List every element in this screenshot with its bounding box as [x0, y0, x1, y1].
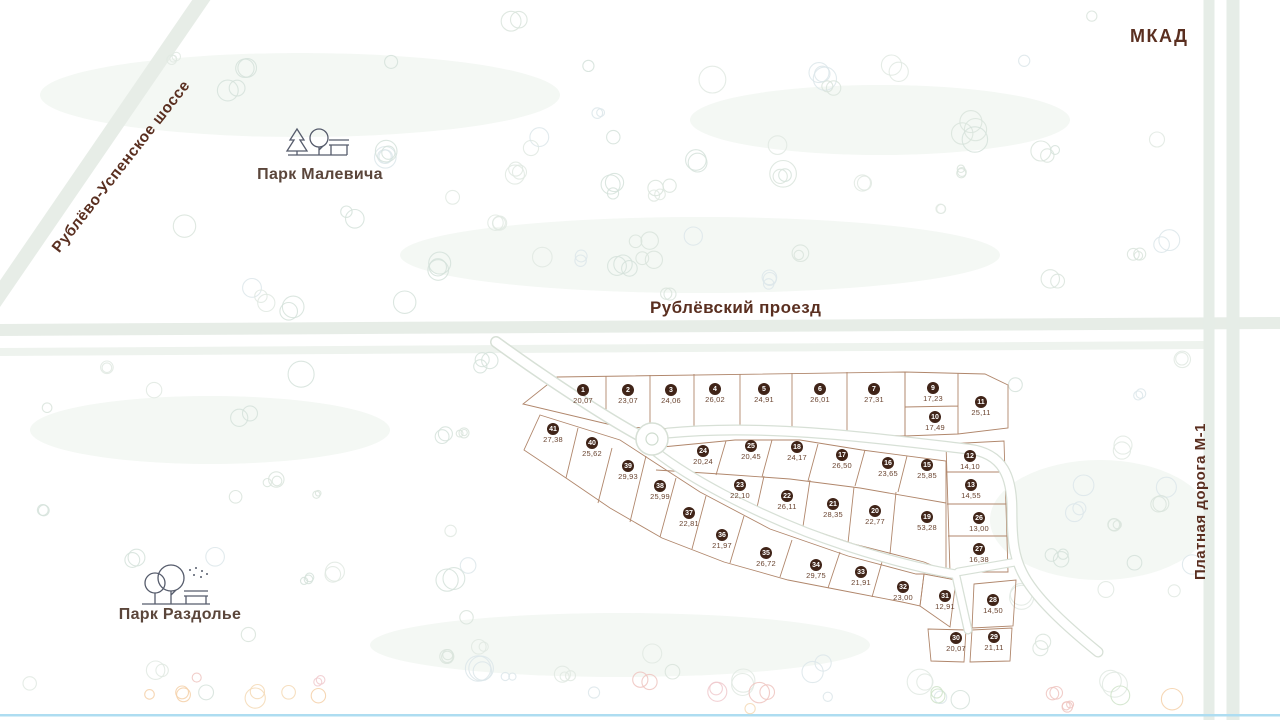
plot-number-badge[interactable]: 22 [781, 490, 793, 502]
plot-number-badge[interactable]: 34 [810, 559, 822, 571]
plot-number-badge[interactable]: 37 [683, 507, 695, 519]
plots-layer: 120,07223,07324,06426,02524,91626,01727,… [0, 0, 1280, 720]
plot-area-label: 26,50 [832, 462, 852, 470]
plot-marker-9[interactable]: 917,23 [910, 382, 956, 403]
plot-marker-41[interactable]: 4127,38 [530, 423, 576, 444]
plot-marker-39[interactable]: 3929,93 [605, 460, 651, 481]
plot-area-label: 21,11 [984, 644, 1003, 652]
plot-marker-27[interactable]: 2716,38 [956, 543, 1002, 564]
plot-area-label: 26,72 [756, 560, 776, 568]
plot-area-label: 24,06 [661, 397, 681, 405]
plot-area-label: 17,49 [925, 424, 945, 432]
plot-number-badge[interactable]: 40 [586, 437, 598, 449]
plot-number-badge[interactable]: 26 [973, 512, 985, 524]
plot-marker-18[interactable]: 1824,17 [774, 441, 820, 462]
plot-number-badge[interactable]: 36 [716, 529, 728, 541]
plot-marker-21[interactable]: 2128,35 [810, 498, 856, 519]
plot-marker-19[interactable]: 1953,28 [904, 511, 950, 532]
plot-number-badge[interactable]: 6 [814, 383, 826, 395]
plot-marker-2[interactable]: 223,07 [605, 384, 651, 405]
plot-number-badge[interactable]: 20 [869, 505, 881, 517]
plot-marker-3[interactable]: 324,06 [648, 384, 694, 405]
plot-number-badge[interactable]: 31 [939, 590, 951, 602]
plot-area-label: 13,00 [969, 525, 989, 533]
plot-marker-20[interactable]: 2022,77 [852, 505, 898, 526]
plot-area-label: 22,10 [730, 492, 750, 500]
plot-marker-12[interactable]: 1214,10 [947, 450, 993, 471]
plot-area-label: 25,85 [917, 472, 937, 480]
plot-number-badge[interactable]: 1 [577, 384, 589, 396]
plot-number-badge[interactable]: 9 [927, 382, 939, 394]
plot-marker-13[interactable]: 1314,55 [948, 479, 994, 500]
plot-number-badge[interactable]: 4 [709, 383, 721, 395]
plot-number-badge[interactable]: 11 [975, 396, 987, 408]
plot-marker-10[interactable]: 1017,49 [912, 411, 958, 432]
plot-number-badge[interactable]: 38 [654, 480, 666, 492]
plot-marker-37[interactable]: 3722,81 [666, 507, 712, 528]
plot-area-label: 22,77 [865, 518, 885, 526]
plot-number-badge[interactable]: 18 [791, 441, 803, 453]
plot-area-label: 24,91 [754, 396, 774, 404]
plot-number-badge[interactable]: 16 [882, 457, 894, 469]
plot-number-badge[interactable]: 23 [734, 479, 746, 491]
plot-area-label: 21,97 [712, 542, 732, 550]
plot-number-badge[interactable]: 24 [697, 445, 709, 457]
plot-marker-4[interactable]: 426,02 [692, 383, 738, 404]
plot-area-label: 23,07 [618, 397, 638, 405]
plot-marker-6[interactable]: 626,01 [797, 383, 843, 404]
plot-marker-5[interactable]: 524,91 [741, 383, 787, 404]
plot-area-label: 27,38 [543, 436, 563, 444]
plot-area-label: 29,75 [806, 572, 826, 580]
plot-number-badge[interactable]: 35 [760, 547, 772, 559]
plot-marker-7[interactable]: 727,31 [851, 383, 897, 404]
plot-number-badge[interactable]: 29 [988, 631, 1000, 643]
plot-area-label: 24,17 [787, 454, 807, 462]
plot-number-badge[interactable]: 25 [745, 440, 757, 452]
plot-area-label: 21,91 [851, 579, 871, 587]
plot-area-label: 17,23 [923, 395, 943, 403]
plot-number-badge[interactable]: 5 [758, 383, 770, 395]
plot-marker-11[interactable]: 1125,11 [958, 396, 1004, 417]
plot-number-badge[interactable]: 27 [973, 543, 985, 555]
plot-number-badge[interactable]: 21 [827, 498, 839, 510]
plot-number-badge[interactable]: 13 [965, 479, 977, 491]
plot-area-label: 26,11 [777, 503, 796, 511]
plot-area-label: 20,07 [573, 397, 593, 405]
plot-marker-23[interactable]: 2322,10 [717, 479, 763, 500]
plot-area-label: 23,00 [893, 594, 913, 602]
plot-area-label: 28,35 [823, 511, 843, 519]
plot-marker-22[interactable]: 2226,11 [764, 490, 810, 511]
plot-marker-1[interactable]: 120,07 [560, 384, 606, 405]
plot-number-badge[interactable]: 33 [855, 566, 867, 578]
plot-area-label: 26,01 [810, 396, 830, 404]
plot-marker-33[interactable]: 3321,91 [838, 566, 884, 587]
plot-number-badge[interactable]: 7 [868, 383, 880, 395]
plot-area-label: 20,45 [741, 453, 761, 461]
plot-area-label: 29,93 [618, 473, 638, 481]
plot-area-label: 26,02 [705, 396, 725, 404]
plot-area-label: 25,62 [582, 450, 602, 458]
plot-area-label: 12,91 [935, 603, 955, 611]
plot-area-label: 20,24 [693, 458, 713, 466]
plot-number-badge[interactable]: 32 [897, 581, 909, 593]
plot-number-badge[interactable]: 2 [622, 384, 634, 396]
plot-area-label: 14,10 [960, 463, 980, 471]
plot-number-badge[interactable]: 10 [929, 411, 941, 423]
plot-marker-17[interactable]: 1726,50 [819, 449, 865, 470]
plot-marker-31[interactable]: 3112,91 [922, 590, 968, 611]
plot-marker-26[interactable]: 2613,00 [956, 512, 1002, 533]
plot-number-badge[interactable]: 30 [950, 632, 962, 644]
plot-number-badge[interactable]: 19 [921, 511, 933, 523]
plot-marker-25[interactable]: 2520,45 [728, 440, 774, 461]
plot-area-label: 53,28 [917, 524, 937, 532]
plot-number-badge[interactable]: 39 [622, 460, 634, 472]
plot-area-label: 16,38 [969, 556, 989, 564]
plot-area-label: 25,99 [650, 493, 670, 501]
masterplan-map: МКАД Рублёвский проезд Рублёво-Успенское… [0, 0, 1280, 720]
plot-marker-28[interactable]: 2814,50 [970, 594, 1016, 615]
plot-marker-30[interactable]: 3020,07 [933, 632, 979, 653]
plot-area-label: 14,55 [961, 492, 981, 500]
plot-number-badge[interactable]: 28 [987, 594, 999, 606]
plot-marker-34[interactable]: 3429,75 [793, 559, 839, 580]
plot-marker-24[interactable]: 2420,24 [680, 445, 726, 466]
plot-area-label: 22,81 [679, 520, 699, 528]
plot-area-label: 23,65 [878, 470, 898, 478]
plot-number-badge[interactable]: 17 [836, 449, 848, 461]
plot-marker-36[interactable]: 3621,97 [699, 529, 745, 550]
plot-number-badge[interactable]: 41 [547, 423, 559, 435]
plot-marker-38[interactable]: 3825,99 [637, 480, 683, 501]
plot-number-badge[interactable]: 12 [964, 450, 976, 462]
plot-area-label: 25,11 [971, 409, 990, 417]
plot-number-badge[interactable]: 15 [921, 459, 933, 471]
plot-marker-16[interactable]: 1623,65 [865, 457, 911, 478]
plot-area-label: 14,50 [983, 607, 1003, 615]
plot-marker-32[interactable]: 3223,00 [880, 581, 926, 602]
plot-area-label: 20,07 [946, 645, 966, 653]
plot-number-badge[interactable]: 3 [665, 384, 677, 396]
plot-marker-35[interactable]: 3526,72 [743, 547, 789, 568]
plot-area-label: 27,31 [864, 396, 884, 404]
